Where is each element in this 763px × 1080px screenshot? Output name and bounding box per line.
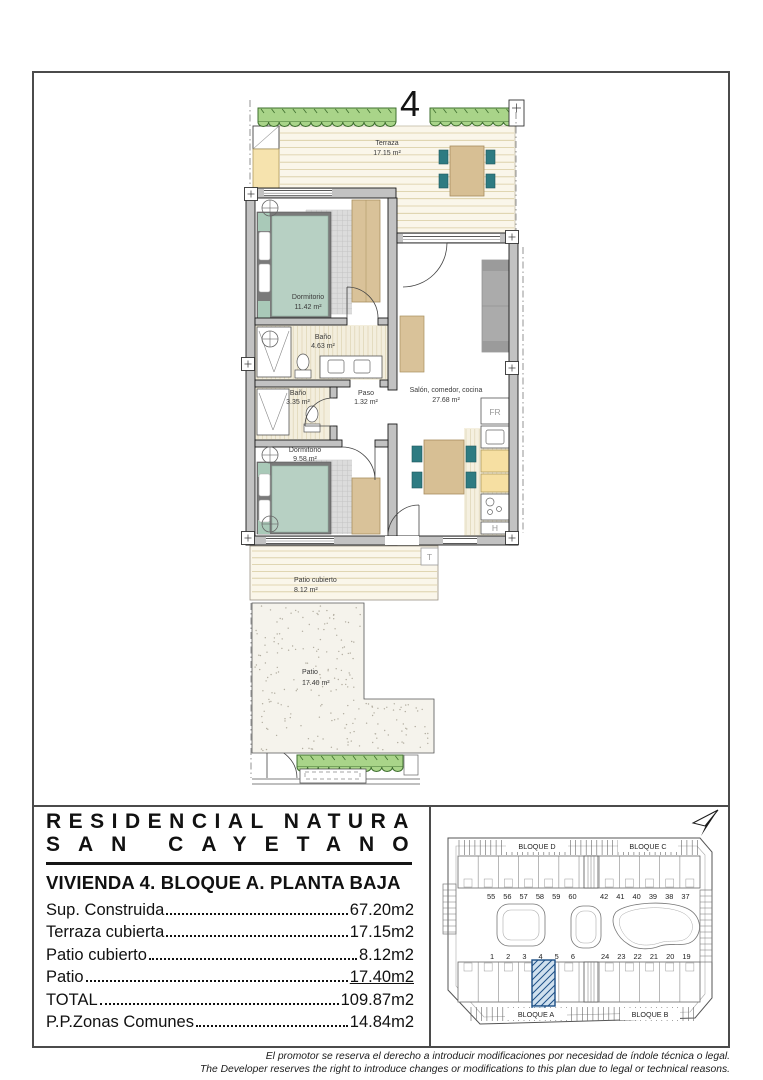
spec-row-patio: Patio 17.40m2 <box>46 966 414 988</box>
spec-value-underlined: 17.40m2 <box>350 966 414 988</box>
room-label-terraza: Terraza <box>375 140 398 147</box>
spec-label: P.P.Zonas Comunes <box>46 1011 194 1033</box>
leader-dots <box>196 1025 348 1027</box>
spec-row-terraza-cubierta: Terraza cubierta 17.15m2 <box>46 921 414 943</box>
room-area-salon: 27.68 m² <box>432 397 460 404</box>
room-area-patio: 17.40 m² <box>302 680 330 687</box>
parking-strip-left <box>443 884 456 934</box>
room-area-paso: 1.32 m² <box>354 399 378 406</box>
disclaimer-es: El promotor se reserva el derecho a intr… <box>130 1051 730 1064</box>
bedroom1-window <box>264 189 332 197</box>
bloque-a-label: BLOQUE A <box>518 1010 555 1019</box>
room-area-patio-cubierto: 8.12 m² <box>294 587 318 594</box>
spec-value: 17.15m2 <box>350 921 414 943</box>
title-rule <box>46 862 412 865</box>
north-arrow-wing <box>693 810 718 826</box>
spec-label: Sup. Construida <box>46 899 164 921</box>
patio-door-opening <box>385 536 419 545</box>
plan-sheet-page: 4 <box>0 0 763 1080</box>
spec-row-zonas-comunes: P.P.Zonas Comunes 14.84m2 <box>46 1011 414 1033</box>
room-label-bano2: Baño <box>290 390 306 397</box>
spec-row-sup-construida: Sup. Construida 67.20m2 <box>46 899 414 921</box>
project-name-line2: SAN CAYETANO <box>46 833 414 856</box>
pools <box>497 903 700 949</box>
spec-row-patio-cubierto: Patio cubierto 8.12m2 <box>46 944 414 966</box>
room-area-bano1: 4.63 m² <box>311 343 335 350</box>
unit-numbers-bottom-right: 24 23 22 21 20 19 <box>601 952 691 961</box>
title-block: RESIDENCIAL NATURA SAN CAYETANO VIVIENDA… <box>46 810 414 1033</box>
bloque-d-label: BLOQUE D <box>518 842 555 851</box>
bloque-c-label: BLOQUE C <box>629 842 666 851</box>
room-label-dormitorio2: Dormitorio <box>289 447 321 454</box>
spec-value: 67.20m2 <box>350 899 414 921</box>
bloque-b-label: BLOQUE B <box>632 1010 669 1019</box>
leader-dots <box>166 913 347 915</box>
project-name-line1: RESIDENCIAL NATURA <box>46 810 414 833</box>
room-area-terraza: 17.15 m² <box>373 150 401 157</box>
room-label-patio: Patio <box>302 669 318 676</box>
room-area-dormitorio1: 11.42 m² <box>294 304 322 311</box>
room-label-dormitorio1: Dormitorio <box>292 294 324 301</box>
leader-dots <box>166 935 347 937</box>
spec-label: Terraza cubierta <box>46 921 164 943</box>
spec-value: 14.84m2 <box>350 1011 414 1033</box>
highlighted-unit-4 <box>532 960 555 1015</box>
kitchen-units: FR H <box>481 398 509 534</box>
room-label-bano1: Baño <box>315 334 331 341</box>
living-glass-front <box>403 234 500 242</box>
room-label-paso: Paso <box>358 390 374 397</box>
leader-dots <box>149 958 357 960</box>
unit-numbers-top-left: 55 56 57 58 59 60 <box>487 892 577 901</box>
kitchen-window <box>443 537 477 544</box>
terrace-post-label: T <box>427 552 432 562</box>
spec-row-total: TOTAL 109.87m2 <box>46 989 414 1011</box>
hob-label: H <box>492 523 498 533</box>
parking-strip-right <box>700 890 712 962</box>
disclaimer: El promotor se reserva el derecho a intr… <box>130 1051 730 1077</box>
room-area-bano2: 3.35 m² <box>286 399 310 406</box>
unit-numbers-top-right: 42 41 40 39 38 37 <box>600 892 690 901</box>
unit-title: VIVIENDA 4. BLOQUE A. PLANTA BAJA <box>46 872 414 894</box>
fridge-label: FR <box>489 407 500 417</box>
site-plan: BLOQUE D BLOQUE C 55 56 57 58 59 60 42 4… <box>443 810 718 1024</box>
room-label-salon: Salón, comedor, cocina <box>410 387 483 394</box>
spec-label: TOTAL <box>46 989 98 1011</box>
spec-value: 109.87m2 <box>341 989 414 1011</box>
spec-value: 8.12m2 <box>359 944 414 966</box>
bedroom1-furniture <box>257 200 380 320</box>
covered-patio: T <box>250 546 438 600</box>
leader-dots <box>86 980 348 982</box>
unit-number-label: 4 <box>400 83 420 124</box>
spec-label: Patio cubierto <box>46 944 147 966</box>
leader-dots <box>100 1003 339 1005</box>
bedroom2-window <box>266 537 334 544</box>
room-area-dormitorio2: 9.58 m² <box>293 456 317 463</box>
disclaimer-en: The Developer reserves the right to intr… <box>130 1064 730 1077</box>
room-label-patio-cubierto: Patio cubierto <box>294 577 337 584</box>
spec-label: Patio <box>46 966 84 988</box>
